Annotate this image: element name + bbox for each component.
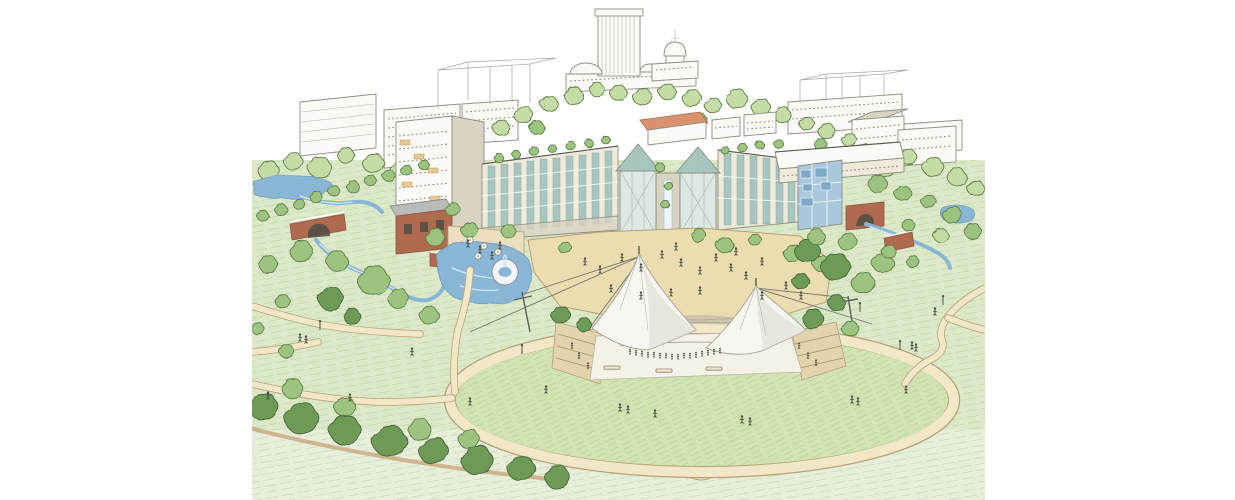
tree-blob xyxy=(774,108,791,123)
tree-blob xyxy=(512,151,521,159)
bench xyxy=(656,369,672,372)
plaza-paving xyxy=(528,228,832,320)
tree-blob xyxy=(584,139,593,147)
old-capitol-dome xyxy=(664,42,686,56)
umbrella xyxy=(475,253,481,259)
tree-blob xyxy=(283,153,303,170)
capitol-tower-cap xyxy=(595,9,643,16)
tree-blob xyxy=(841,133,856,146)
umbrella xyxy=(481,243,487,249)
central-plaza xyxy=(528,228,832,320)
tree-blob xyxy=(540,96,557,111)
bench xyxy=(604,366,620,369)
tree-blob xyxy=(756,142,765,150)
tree-blob xyxy=(362,154,384,173)
tree-blob xyxy=(529,121,544,134)
capitol-complex xyxy=(566,9,698,92)
bench xyxy=(706,367,722,370)
townhouse-b xyxy=(744,112,776,136)
capitol-dome-left xyxy=(570,63,602,74)
old-capitol-body xyxy=(652,61,698,81)
tree-blob xyxy=(602,137,611,145)
tree-blob xyxy=(704,98,721,113)
glass-annex xyxy=(798,160,842,230)
tree-blob xyxy=(633,89,653,106)
atrium-tower-left xyxy=(616,144,660,234)
tree-blob xyxy=(530,147,540,156)
rendering-page xyxy=(0,0,1235,500)
tree-blob xyxy=(774,139,784,148)
wireframe-building-left xyxy=(438,58,556,108)
rendering-canvas xyxy=(0,0,1235,500)
tree-blob xyxy=(738,143,748,152)
tree-blob xyxy=(726,90,748,109)
tree-blob xyxy=(307,156,331,177)
tree-blob xyxy=(566,141,576,150)
umbrella xyxy=(495,249,501,255)
tree-blob xyxy=(494,153,504,162)
tree-blob xyxy=(720,146,729,154)
tree-blob xyxy=(548,145,557,153)
tree-blob xyxy=(681,89,701,106)
